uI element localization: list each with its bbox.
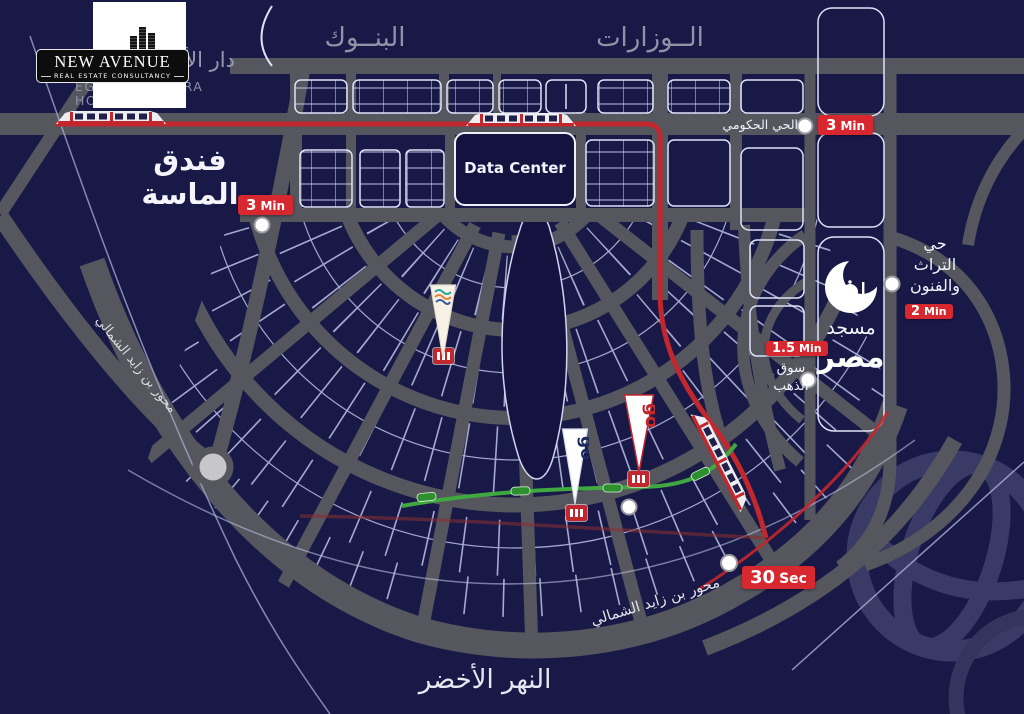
gov-district-label: الحي الحكومي: [698, 118, 798, 132]
new-avenue-logo: NEW AVENUE REAL ESTATE CONSULTANCY: [36, 2, 186, 108]
buildings-icon: [128, 26, 156, 50]
district-ministries: الــوزارات: [575, 24, 725, 54]
time-badge-gold: 1.5 Min: [766, 341, 828, 356]
time-badge-heritage: 2 Min: [905, 304, 953, 319]
green-river-label: النهر الأخضر: [385, 666, 585, 696]
map-pin-1: [429, 284, 457, 360]
time-badge-hotel: 3 Min: [238, 195, 293, 215]
monorail-train-icon: [56, 111, 166, 125]
heritage-district-label: حي التراث والفنون: [893, 234, 977, 296]
data-center-label: Data Center: [455, 133, 575, 205]
time-badge-gov: 3 Min: [818, 115, 873, 135]
mosque-icon: [822, 258, 880, 316]
logo-tagline: REAL ESTATE CONSULTANCY: [54, 72, 171, 80]
map-pin-3: go: [623, 394, 655, 474]
pin-logo-text: go: [576, 436, 589, 460]
logo-plate: NEW AVENUE REAL ESTATE CONSULTANCY: [36, 49, 189, 83]
project-marker-icon: [566, 505, 587, 521]
district-banks: البنــوك: [290, 24, 440, 54]
mosque-label-line1: مسجد: [814, 318, 888, 340]
time-badge-ring: 30 Sec: [742, 566, 815, 589]
map-pin-2: go: [561, 428, 589, 506]
monorail-train-icon: [466, 113, 576, 127]
gold-market-label: سوق الذهب: [760, 360, 822, 395]
map-canvas: دار الأ EGYPTIAN OPERA HOUSE NEW AVENUE …: [0, 0, 1024, 714]
roundabout-icon: [196, 450, 230, 484]
pin-logo-text: go: [641, 403, 655, 428]
logo-name: NEW AVENUE: [54, 52, 170, 72]
